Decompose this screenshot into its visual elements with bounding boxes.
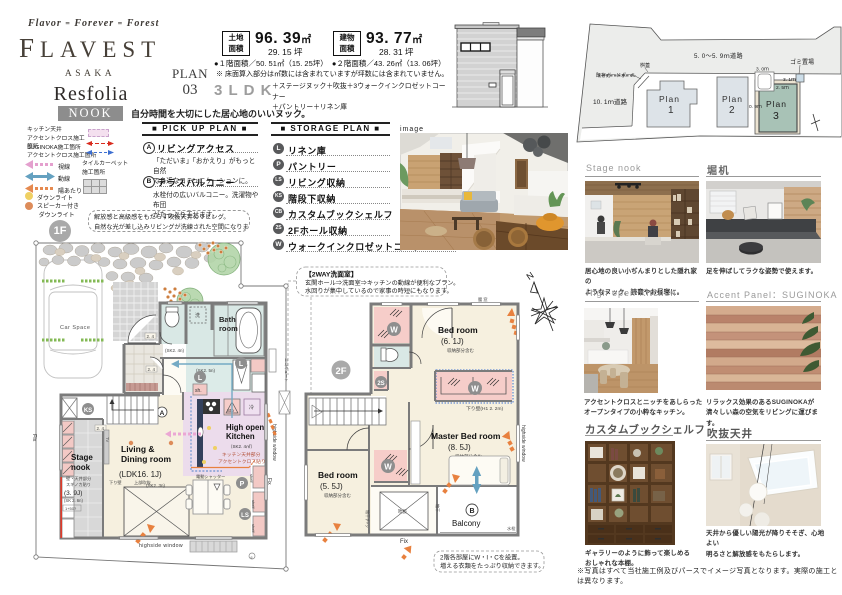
svg-text:Bed room: Bed room: [438, 325, 478, 335]
svg-text:下り壁(H1 2. 2m): 下り壁(H1 2. 2m): [466, 405, 503, 412]
svg-text:スギノカ貼り: スギノカ貼り: [66, 481, 91, 488]
svg-text:上部吹抜: 上部吹抜: [134, 479, 152, 486]
svg-text:2. 4: 2. 4: [148, 367, 156, 372]
svg-text:Bed room: Bed room: [318, 470, 358, 480]
svg-text:既存ガードポール: 既存ガードポール: [596, 72, 636, 79]
svg-text:2. 4: 2. 4: [147, 334, 155, 339]
svg-text:キッチン天井部分: キッチン天井部分: [222, 451, 261, 458]
svg-text:W: W: [390, 326, 398, 335]
svg-text:shelf: shelf: [249, 474, 254, 483]
svg-text:Master Bed room: Master Bed room: [431, 431, 501, 441]
svg-text:腰 窓: 腰 窓: [478, 296, 488, 303]
svg-text:(SK 2. 6n): (SK 2. 6n): [64, 498, 83, 503]
svg-text:nook: nook: [71, 463, 91, 472]
svg-text:Kitchen: Kitchen: [226, 432, 255, 441]
svg-text:壁・天井部分: 壁・天井部分: [66, 475, 92, 482]
svg-text:（SK2. 4㎡）: （SK2. 4㎡）: [228, 443, 255, 449]
svg-text:shelf: shelf: [251, 524, 256, 533]
svg-text:A: A: [160, 410, 165, 417]
svg-text:(6. 1J): (6. 1J): [441, 337, 464, 346]
svg-text:【2WAY洗面室】: 【2WAY洗面室】: [305, 270, 358, 279]
svg-text:増える衣類をたっぷり収納できます。: 増える衣類をたっぷり収納できます。: [440, 562, 544, 570]
svg-text:収納部分含む: 収納部分含む: [447, 347, 474, 354]
svg-text:10. 1ｍ道路: 10. 1ｍ道路: [593, 97, 627, 106]
svg-text:highside window: highside window: [271, 424, 277, 461]
svg-text:2. 4: 2. 4: [97, 426, 105, 431]
svg-text:shelf: shelf: [251, 500, 256, 509]
svg-text:電動シャッター: 電動シャッター: [196, 473, 225, 480]
svg-text:下り壁: 下り壁: [109, 479, 122, 486]
svg-text:(LDK16. 1J): (LDK16. 1J): [119, 470, 162, 479]
svg-text:5. 0～5. 9ｍ道路: 5. 0～5. 9ｍ道路: [694, 52, 744, 60]
svg-text:room: room: [219, 324, 238, 333]
svg-text:Car Space: Car Space: [60, 325, 91, 331]
svg-text:3. 0ｍ: 3. 0ｍ: [756, 67, 769, 73]
svg-text:物干: 物干: [435, 504, 441, 512]
svg-text:LS: LS: [241, 513, 249, 519]
svg-text:2: 2: [729, 105, 735, 116]
svg-text:W: W: [384, 463, 392, 472]
svg-text:洗: 洗: [195, 312, 200, 319]
svg-text:Plan: Plan: [722, 94, 743, 104]
svg-text:玄関ホール⇒洗面室⇒キッチンの動線が便利なプラン。: 玄関ホール⇒洗面室⇒キッチンの動線が便利なプラン。: [305, 279, 459, 287]
svg-text:桝蓋: 桝蓋: [640, 62, 650, 69]
svg-text:(8. 5J): (8. 5J): [448, 443, 471, 452]
svg-text:3. 1ｍ: 3. 1ｍ: [783, 77, 796, 83]
svg-text:highside window: highside window: [139, 543, 183, 549]
svg-text:Dining room: Dining room: [121, 454, 171, 464]
svg-text:(3. 9J): (3. 9J): [64, 490, 82, 497]
svg-text:2. 5ｍ: 2. 5ｍ: [776, 85, 789, 91]
svg-text:3: 3: [773, 110, 779, 122]
svg-text:収納部分含む: 収納部分含む: [324, 492, 351, 499]
svg-text:TV: TV: [105, 437, 110, 442]
svg-text:(SK2. 4n): (SK2. 4n): [165, 348, 185, 353]
svg-text:L: L: [198, 375, 203, 382]
svg-text:吹抜: 吹抜: [398, 508, 407, 515]
svg-text:L: L: [239, 361, 244, 368]
svg-text:Sto: Sto: [227, 408, 234, 413]
svg-text:highside window: highside window: [520, 425, 526, 462]
svg-text:Balcony: Balcony: [452, 519, 480, 528]
svg-text:0. 9ｍ: 0. 9ｍ: [749, 104, 762, 110]
svg-text:Living &: Living &: [121, 444, 155, 454]
svg-text:sh.: sh.: [195, 388, 202, 394]
svg-text:物干チｬッ: 物干チｬッ: [365, 510, 371, 528]
svg-text:(5. 5J): (5. 5J): [320, 482, 343, 491]
svg-text:Plan: Plan: [766, 99, 787, 109]
svg-text:2S: 2S: [377, 381, 384, 387]
svg-text:High open: High open: [226, 423, 264, 432]
svg-text:Stage: Stage: [71, 453, 93, 462]
svg-text:W: W: [471, 385, 479, 394]
svg-text:P: P: [240, 481, 245, 488]
svg-text:冷: 冷: [249, 404, 254, 411]
svg-text:エコキュート: エコキュート: [284, 358, 289, 382]
svg-text:ゴミ置場: ゴミ置場: [790, 58, 814, 66]
svg-text:N: N: [525, 270, 536, 282]
svg-text:Fix: Fix: [31, 434, 37, 442]
svg-text:KS: KS: [84, 408, 92, 414]
svg-text:水栓: 水栓: [507, 525, 516, 532]
svg-text:2F: 2F: [335, 366, 346, 377]
svg-text:B: B: [469, 508, 474, 515]
svg-text:水回りが集中しているので家事の時短にもなります。: 水回りが集中しているので家事の時短にもなります。: [305, 287, 453, 295]
svg-text:Fix: Fix: [400, 539, 408, 545]
svg-text:1: 1: [668, 105, 674, 116]
svg-text:アクセントクロス貼り: アクセントクロス貼り: [218, 458, 266, 465]
svg-text:1+50?: 1+50?: [65, 506, 77, 511]
svg-text:Plan: Plan: [659, 94, 680, 104]
svg-text:Bath: Bath: [219, 315, 236, 324]
svg-text:2階各部屋にW・I・Cを設置。: 2階各部屋にW・I・Cを設置。: [440, 554, 524, 562]
